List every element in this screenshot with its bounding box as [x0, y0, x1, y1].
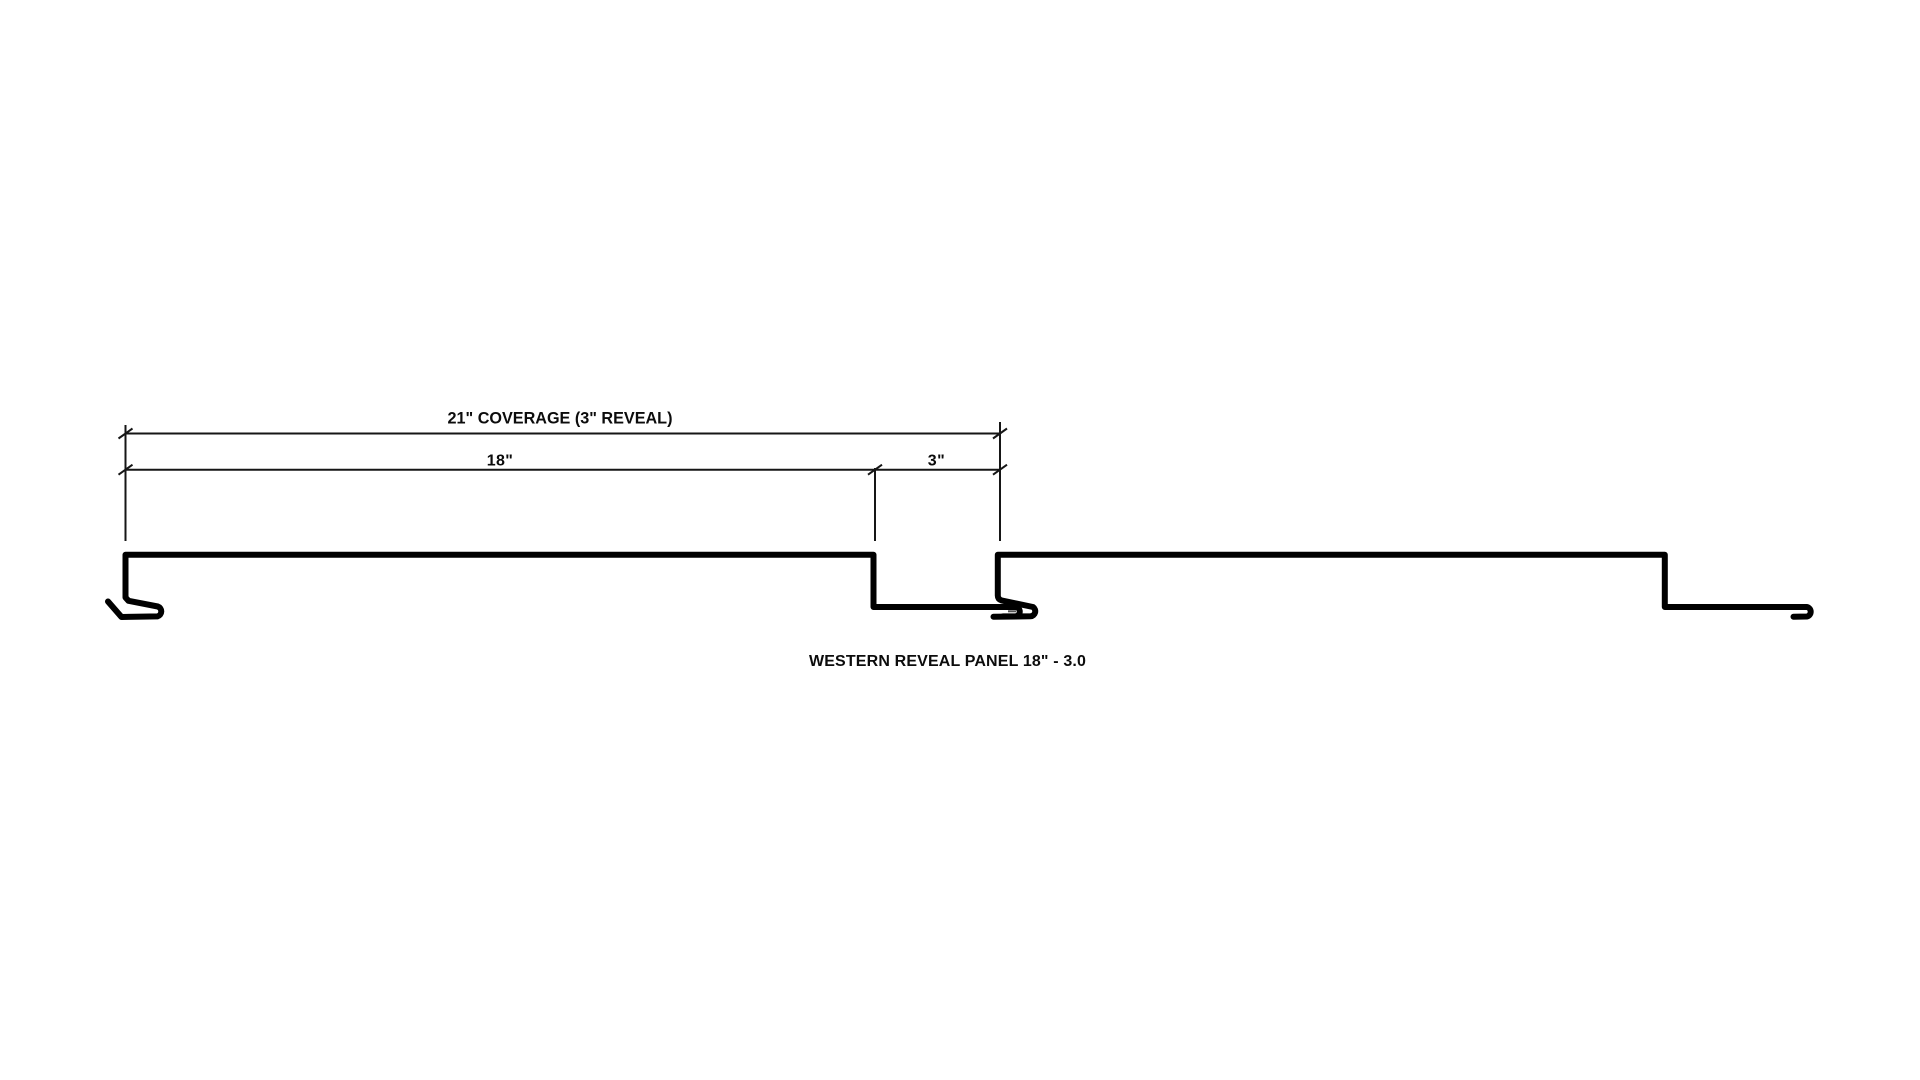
svg-text:WESTERN REVEAL PANEL 18" - 3.0: WESTERN REVEAL PANEL 18" - 3.0	[809, 653, 1086, 670]
svg-text:3": 3"	[928, 452, 945, 469]
svg-text:21" COVERAGE (3" REVEAL): 21" COVERAGE (3" REVEAL)	[448, 409, 673, 427]
svg-text:18": 18"	[487, 452, 514, 469]
